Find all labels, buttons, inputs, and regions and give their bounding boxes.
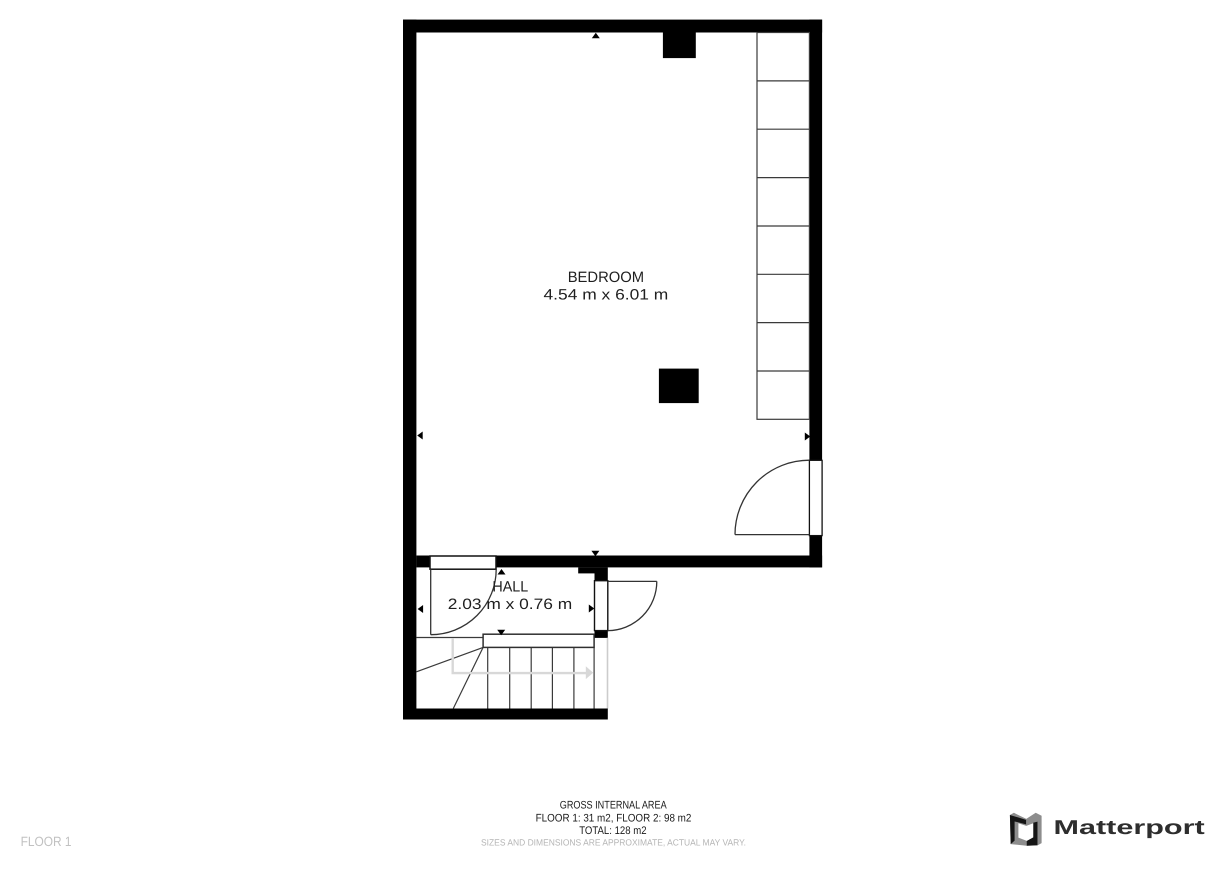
- svg-text:FLOOR 1: 31 m2, FLOOR 2: 98 m2: FLOOR 1: 31 m2, FLOOR 2: 98 m2: [536, 812, 692, 824]
- svg-text:2.03 m x 0.76 m: 2.03 m x 0.76 m: [448, 596, 573, 613]
- svg-text:HALL: HALL: [492, 578, 528, 595]
- svg-text:Matterport: Matterport: [1054, 817, 1206, 839]
- svg-text:BEDROOM: BEDROOM: [568, 269, 644, 286]
- svg-text:TOTAL: 128 m2: TOTAL: 128 m2: [579, 825, 646, 837]
- svg-text:FLOOR 1: FLOOR 1: [21, 834, 72, 849]
- svg-text:GROSS INTERNAL AREA: GROSS INTERNAL AREA: [560, 799, 667, 811]
- svg-text:4.54 m x 6.01 m: 4.54 m x 6.01 m: [544, 287, 669, 304]
- svg-text:SIZES AND DIMENSIONS ARE APPRO: SIZES AND DIMENSIONS ARE APPROXIMATE, AC…: [481, 838, 746, 848]
